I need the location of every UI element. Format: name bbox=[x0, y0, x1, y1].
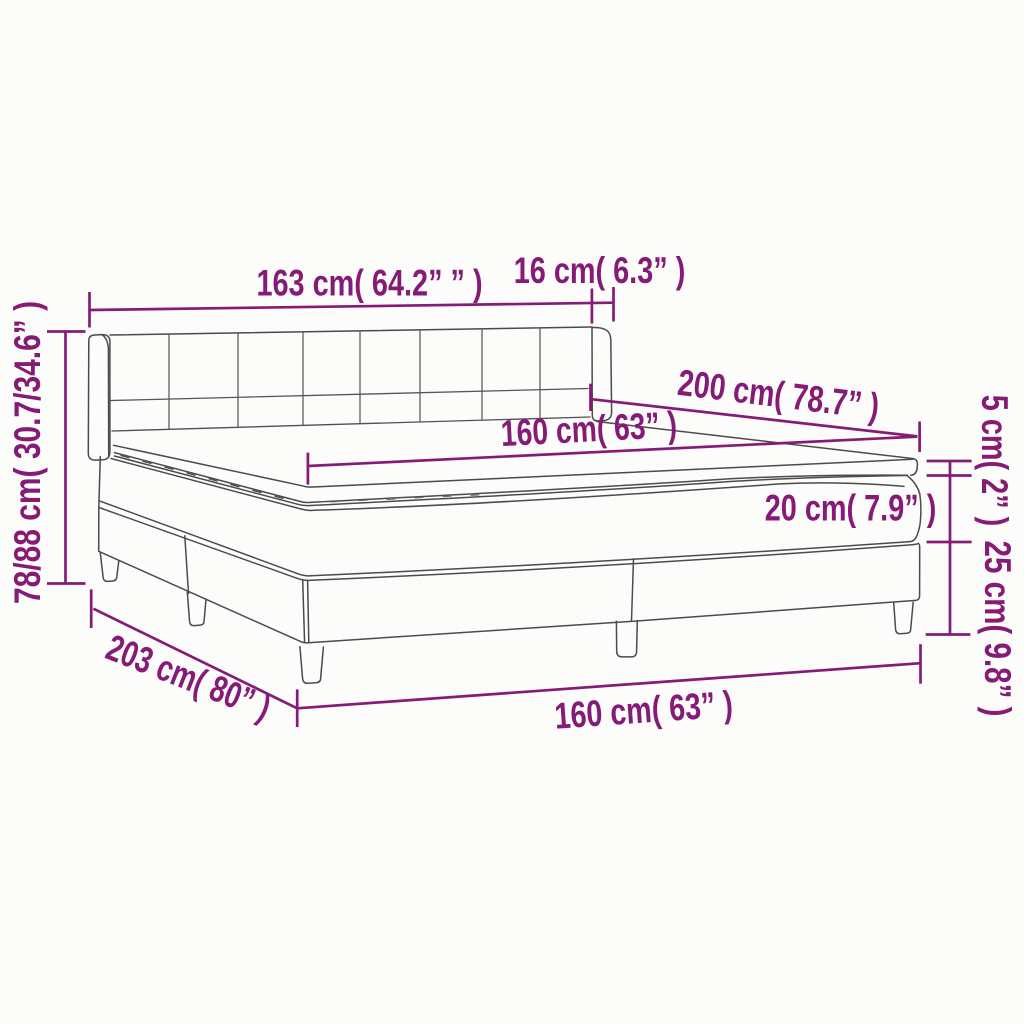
svg-text:5 cm( 2” ): 5 cm( 2” ) bbox=[973, 395, 1014, 526]
svg-text:20 cm( 7.9” ): 20 cm( 7.9” ) bbox=[765, 488, 937, 529]
svg-text:16 cm( 6.3” ): 16 cm( 6.3” ) bbox=[514, 251, 686, 292]
svg-text:163 cm( 64.2” ” ): 163 cm( 64.2” ” ) bbox=[256, 263, 482, 304]
svg-text:25 cm( 9.8” ): 25 cm( 9.8” ) bbox=[976, 540, 1017, 716]
svg-text:78/88 cm( 30.7/34.6” ): 78/88 cm( 30.7/34.6” ) bbox=[8, 301, 49, 604]
